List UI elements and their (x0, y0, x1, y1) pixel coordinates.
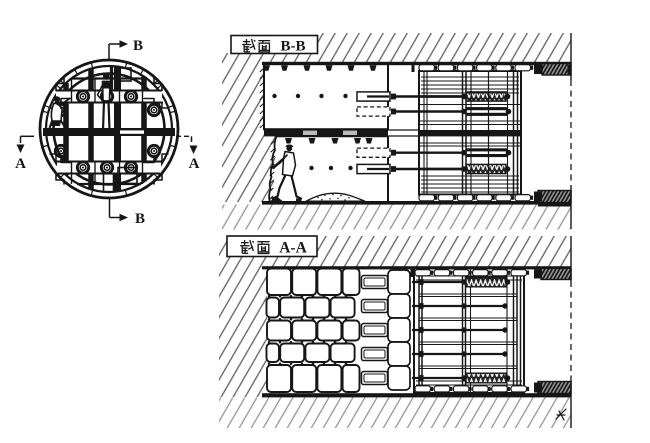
svg-text:A: A (189, 156, 200, 172)
svg-text:A-A: A-A (279, 240, 307, 257)
svg-text:A: A (15, 156, 26, 172)
svg-text:B: B (133, 38, 143, 54)
svg-text:B: B (135, 211, 145, 227)
svg-text:B-B: B-B (280, 39, 305, 55)
